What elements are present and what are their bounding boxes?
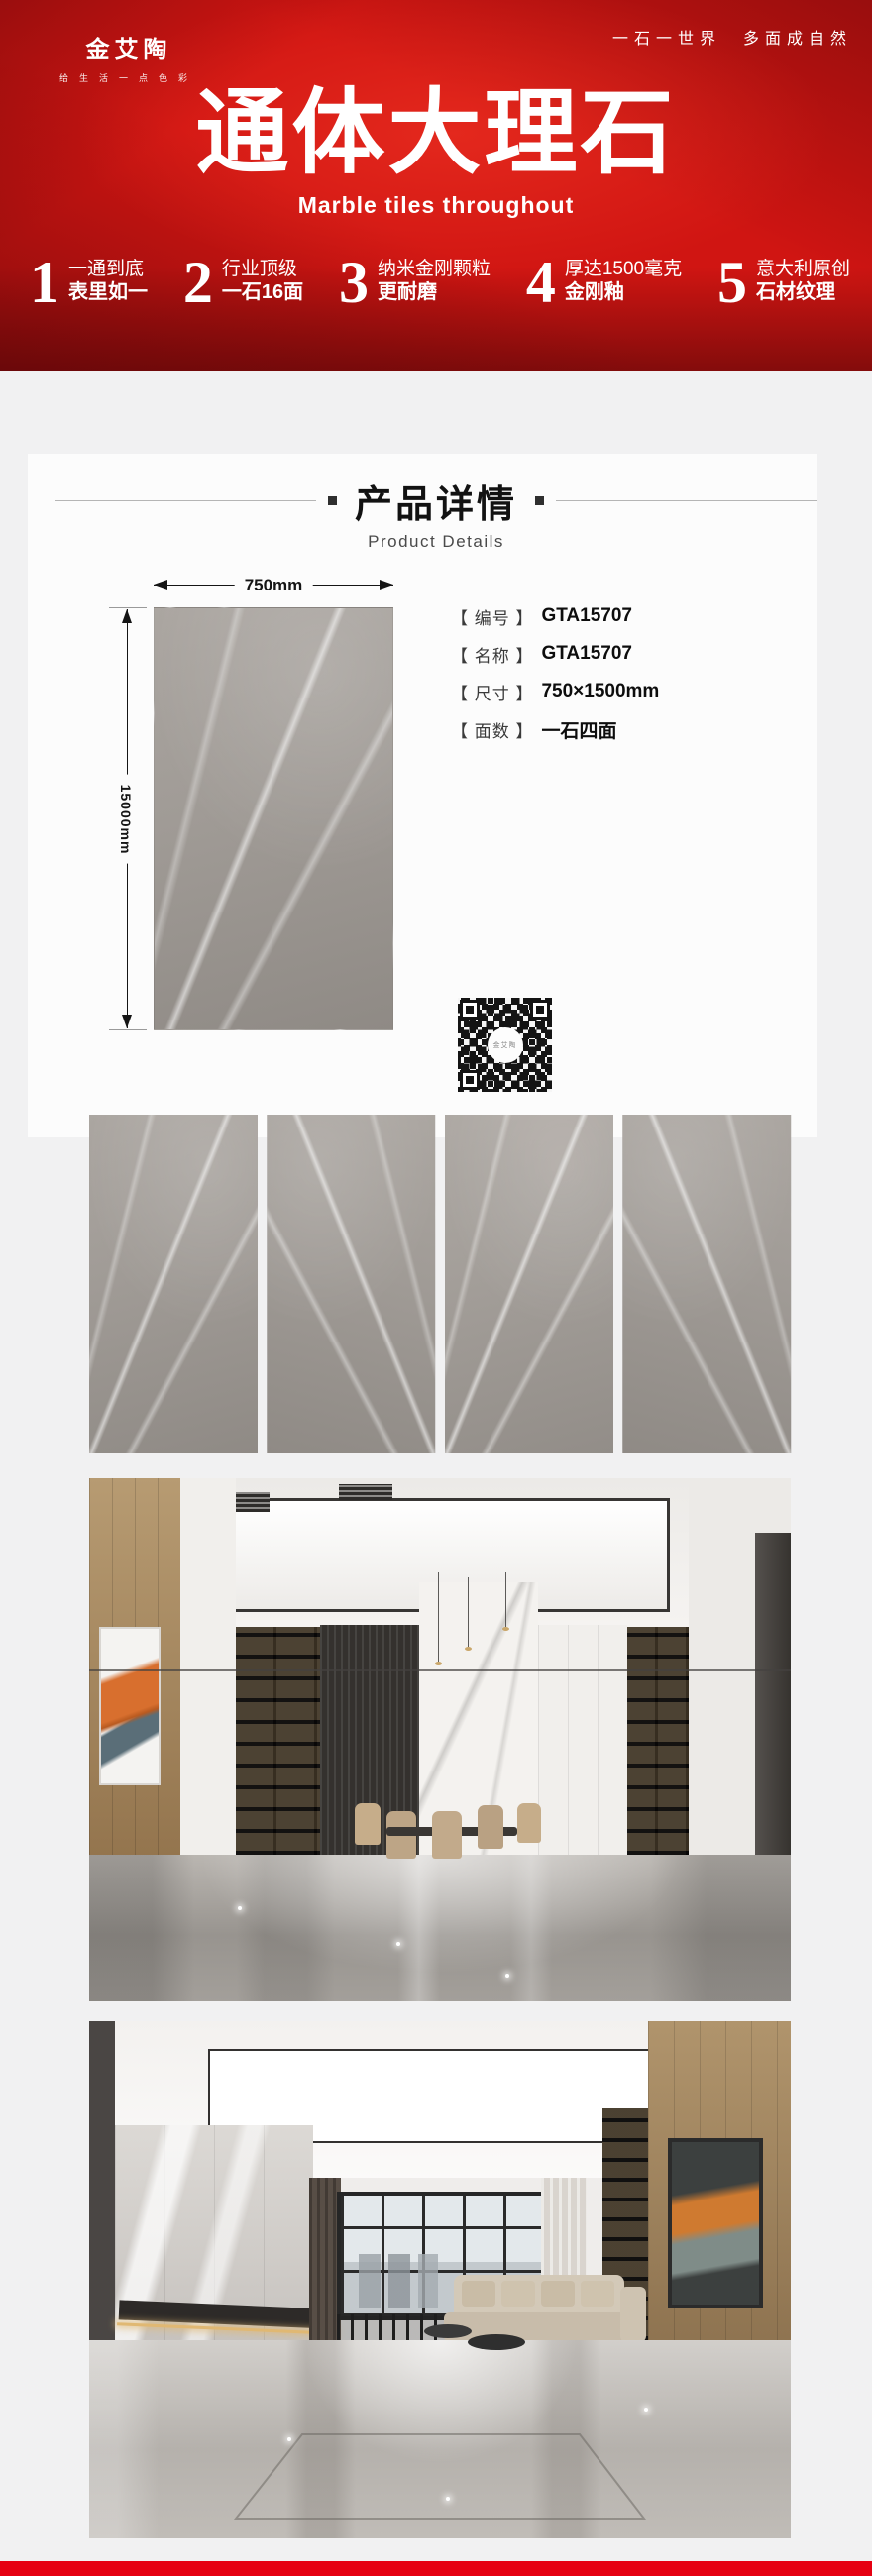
spec-row: 【 名称 】 GTA15707	[451, 635, 768, 673]
abstract-painting	[668, 2138, 763, 2308]
arrow-down-icon	[122, 1015, 132, 1028]
air-vent	[339, 1484, 392, 1500]
feature-item-5: 5 意大利原创 石材纹理	[717, 254, 850, 311]
page-title: 通体大理石	[0, 81, 872, 184]
sofa-armrest	[620, 2287, 646, 2342]
sofa-cushion	[541, 2281, 575, 2307]
feature-item-3: 3 纳米金刚颗粒 更耐磨	[339, 254, 490, 311]
pendant-light	[438, 1572, 439, 1662]
sofa-cushion	[501, 2281, 535, 2307]
spec-row: 【 面数 】 一石四面	[451, 710, 768, 748]
square-bullet-right	[535, 496, 544, 505]
section-header: 产品详情 Product Details	[54, 474, 817, 552]
spec-label-faces: 【 面数 】	[451, 717, 533, 742]
divider-line-left	[54, 500, 316, 501]
feature-number: 4	[526, 254, 556, 311]
product-details-card	[28, 454, 817, 1137]
sofa-cushion	[581, 2281, 614, 2307]
spec-list: 【 编号 】 GTA15707 【 名称 】 GTA15707 【 尺寸 】 7…	[451, 597, 768, 748]
spec-label-size: 【 尺寸 】	[451, 680, 533, 704]
divider-line-right	[556, 500, 817, 501]
square-bullet-left	[328, 496, 337, 505]
feature-item-2: 2 行业顶级 一石16面	[183, 254, 303, 311]
qr-center-logo: 金艾陶	[488, 1027, 523, 1063]
header-banner: 金艾陶 给生活一点色彩 一石一世界 多面成自然 通体大理石 Marble til…	[0, 0, 872, 371]
dining-chair	[432, 1811, 462, 1859]
sofa-cushion	[462, 2281, 495, 2307]
feature-line1: 厚达1500毫克	[565, 259, 682, 280]
feature-number: 2	[183, 254, 213, 311]
section-title: 产品详情	[349, 474, 523, 528]
feature-number: 3	[339, 254, 369, 311]
footer-accent-bar	[0, 2561, 872, 2576]
feature-line1: 行业顶级	[222, 259, 303, 280]
feature-line1: 意大利原创	[756, 259, 850, 280]
tile-swatch-large	[154, 607, 393, 1030]
arrow-right-icon	[380, 580, 393, 590]
floor-highlight	[396, 1942, 400, 1946]
wall-trim-line	[89, 1669, 791, 1671]
feature-number: 1	[30, 254, 59, 311]
width-dimension-label: 750mm	[235, 576, 313, 595]
tile-swatch-2	[267, 1115, 435, 1453]
spec-row: 【 编号 】 GTA15707	[451, 597, 768, 635]
qr-finder-icon	[460, 1070, 480, 1090]
height-dimension: 15000mm	[113, 607, 141, 1030]
tile-swatch-4	[622, 1115, 791, 1453]
feature-item-4: 4 厚达1500毫克 金刚釉	[526, 254, 682, 311]
arrow-up-icon	[122, 609, 132, 623]
spec-row: 【 尺寸 】 750×1500mm	[451, 673, 768, 710]
feature-line2: 金刚釉	[565, 280, 682, 304]
dimension-cap-top	[109, 607, 147, 608]
dining-chair	[355, 1803, 381, 1845]
feature-line1: 纳米金刚颗粒	[378, 259, 490, 280]
tile-gallery-row	[89, 1115, 791, 1453]
feature-line1: 一通到底	[68, 259, 148, 280]
spec-value-code: GTA15707	[541, 605, 632, 627]
product-detail-page: 金艾陶 给生活一点色彩 一石一世界 多面成自然 通体大理石 Marble til…	[0, 0, 872, 2576]
floor-highlight	[446, 2497, 450, 2501]
width-dimension: 750mm	[154, 579, 393, 592]
brand-logo: 金艾陶	[47, 30, 211, 64]
display-shelf	[627, 1627, 689, 1855]
floor-highlight	[505, 1974, 509, 1978]
display-shelf	[236, 1627, 320, 1855]
living-room-photo	[89, 2021, 791, 2538]
floor-inlay-border	[89, 2340, 791, 2538]
page-subtitle: Marble tiles throughout	[0, 192, 872, 219]
feature-list: 1 一通到底 表里如一 2 行业顶级 一石16面 3 纳米金刚颗粒 更耐磨	[30, 254, 850, 311]
qr-finder-icon	[530, 1000, 550, 1020]
spec-value-size: 750×1500mm	[541, 681, 659, 702]
feature-line2: 石材纹理	[756, 280, 850, 304]
floor-highlight	[238, 1906, 242, 1910]
feature-number: 5	[717, 254, 747, 311]
dimension-cap-bottom	[109, 1029, 147, 1030]
arrow-left-icon	[154, 580, 167, 590]
spec-value-name: GTA15707	[541, 643, 632, 665]
height-dimension-label: 15000mm	[118, 774, 134, 864]
white-wall	[180, 1478, 236, 1855]
section-subtitle: Product Details	[54, 532, 817, 552]
feature-line2: 更耐磨	[378, 280, 490, 304]
feature-line2: 一石16面	[222, 280, 303, 304]
coffee-table	[424, 2324, 472, 2338]
pendant-light	[468, 1577, 469, 1647]
header-slogan: 一石一世界 多面成自然	[612, 25, 852, 49]
coffee-table	[468, 2334, 525, 2350]
spec-label-name: 【 名称 】	[451, 642, 533, 667]
brand-logo-block: 金艾陶 给生活一点色彩	[47, 30, 211, 84]
dining-chair	[478, 1805, 503, 1849]
feature-line2: 表里如一	[68, 280, 148, 304]
qr-code: 金艾陶	[458, 998, 552, 1092]
dark-column	[89, 2021, 115, 2340]
marble-floor	[89, 2340, 791, 2538]
city-view	[359, 2254, 438, 2308]
dining-chair	[517, 1803, 541, 1843]
marble-floor	[89, 1855, 791, 2001]
spec-label-code: 【 编号 】	[451, 604, 533, 629]
tile-swatch-3	[445, 1115, 613, 1453]
pendant-light	[505, 1572, 506, 1627]
spec-value-faces: 一石四面	[541, 716, 616, 743]
floor-highlight	[287, 2437, 291, 2441]
dark-column	[755, 1533, 791, 1855]
white-cabinet	[538, 1625, 627, 1855]
abstract-painting	[99, 1627, 161, 1785]
dining-room-photo	[89, 1478, 791, 2001]
tile-swatch-1	[89, 1115, 258, 1453]
floor-highlight	[644, 2408, 648, 2412]
feature-item-1: 1 一通到底 表里如一	[30, 254, 148, 311]
qr-finder-icon	[460, 1000, 480, 1020]
